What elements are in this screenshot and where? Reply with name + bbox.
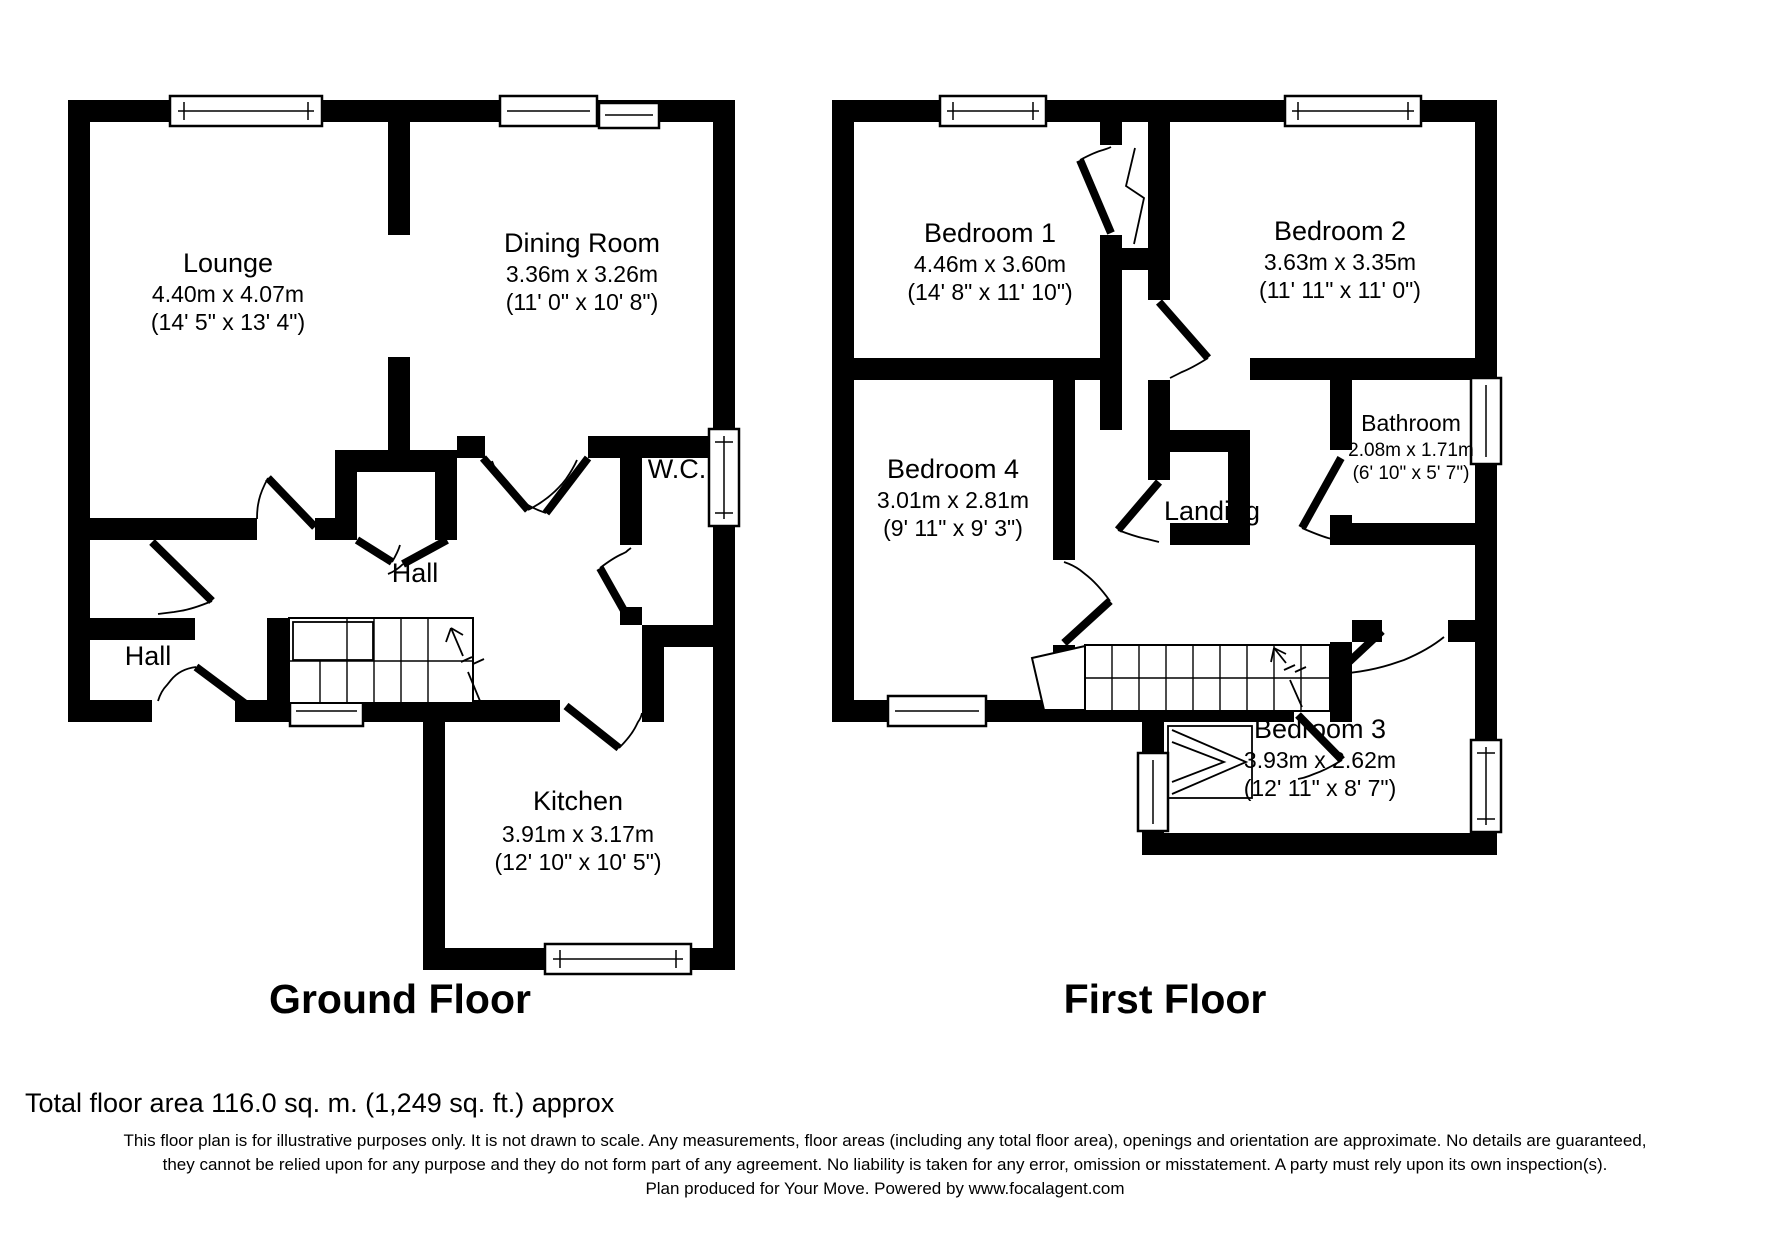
floorplan-page: Lounge 4.40m x 4.07m (14' 5" x 13' 4") D… xyxy=(0,0,1771,1240)
lounge-dims-imperial: (14' 5" x 13' 4") xyxy=(151,309,305,335)
stairs-icon xyxy=(289,618,484,703)
ground-floor-title: Ground Floor xyxy=(269,976,531,1022)
window-icon xyxy=(599,103,659,128)
window-icon xyxy=(1138,753,1168,831)
ground-floor-labels: Lounge 4.40m x 4.07m (14' 5" x 13' 4") D… xyxy=(125,228,707,875)
first-floor-title: First Floor xyxy=(1064,976,1267,1022)
dining-room-dims-imperial: (11' 0" x 10' 8") xyxy=(506,289,659,315)
wc-label: W.C. xyxy=(648,454,707,484)
window-icon xyxy=(1285,96,1421,126)
kitchen-dims-imperial: (12' 10" x 10' 5") xyxy=(494,849,661,875)
bedroom1-dims-metric: 4.46m x 3.60m xyxy=(914,251,1066,277)
window-icon xyxy=(1471,740,1501,832)
kitchen-dims-metric: 3.91m x 3.17m xyxy=(502,821,654,847)
flue-zigzag-icon xyxy=(1126,148,1144,244)
lounge-label: Lounge xyxy=(183,248,273,278)
window-icon xyxy=(545,944,691,974)
disclaimer-line-1: This floor plan is for illustrative purp… xyxy=(124,1131,1647,1150)
window-icon xyxy=(500,96,597,126)
hall-label: Hall xyxy=(392,558,439,588)
lounge-dims-metric: 4.40m x 4.07m xyxy=(152,281,304,307)
bathroom-dims-imperial: (6' 10" x 5' 7") xyxy=(1353,463,1470,484)
hall2-label: Hall xyxy=(125,641,172,671)
bedroom2-dims-imperial: (11' 11" x 11' 0") xyxy=(1259,277,1421,303)
window-icon xyxy=(940,96,1046,126)
bedroom3-label: Bedroom 3 xyxy=(1254,714,1386,744)
dining-room-dims-metric: 3.36m x 3.26m xyxy=(506,261,658,287)
dining-room-label: Dining Room xyxy=(504,228,660,258)
bedroom1-label: Bedroom 1 xyxy=(924,218,1056,248)
window-icon xyxy=(1471,378,1501,464)
bedroom2-dims-metric: 3.63m x 3.35m xyxy=(1264,249,1416,275)
window-icon xyxy=(170,96,322,126)
landing-label: Landing xyxy=(1164,496,1260,526)
disclaimer-line-2: they cannot be relied upon for any purpo… xyxy=(163,1155,1608,1174)
bedroom3-dims-imperial: (12' 11" x 8' 7") xyxy=(1244,775,1397,801)
disclaimer-line-3: Plan produced for Your Move. Powered by … xyxy=(645,1179,1124,1198)
bifold-cupboard-icon xyxy=(1168,726,1252,798)
bathroom-label: Bathroom xyxy=(1361,410,1461,436)
kitchen-label: Kitchen xyxy=(533,786,623,816)
floorplan-canvas: Lounge 4.40m x 4.07m (14' 5" x 13' 4") D… xyxy=(0,0,1771,1240)
window-icon xyxy=(888,696,986,726)
bedroom4-dims-imperial: (9' 11" x 9' 3") xyxy=(883,515,1023,541)
bathroom-dims-metric: 2.08m x 1.71m xyxy=(1348,440,1474,461)
stairs-icon xyxy=(1032,645,1330,711)
bedroom1-dims-imperial: (14' 8" x 11' 10") xyxy=(907,279,1072,305)
window-icon xyxy=(709,429,739,526)
first-floor-plan: Bedroom 1 4.46m x 3.60m (14' 8" x 11' 10… xyxy=(832,96,1501,855)
ground-floor-plan: Lounge 4.40m x 4.07m (14' 5" x 13' 4") D… xyxy=(68,96,739,974)
bedroom3-dims-metric: 3.93m x 2.62m xyxy=(1244,747,1396,773)
bedroom2-label: Bedroom 2 xyxy=(1274,216,1406,246)
bedroom4-label: Bedroom 4 xyxy=(887,454,1019,484)
bedroom4-dims-metric: 3.01m x 2.81m xyxy=(877,487,1029,513)
total-floor-area: Total floor area 116.0 sq. m. (1,249 sq.… xyxy=(25,1088,615,1118)
